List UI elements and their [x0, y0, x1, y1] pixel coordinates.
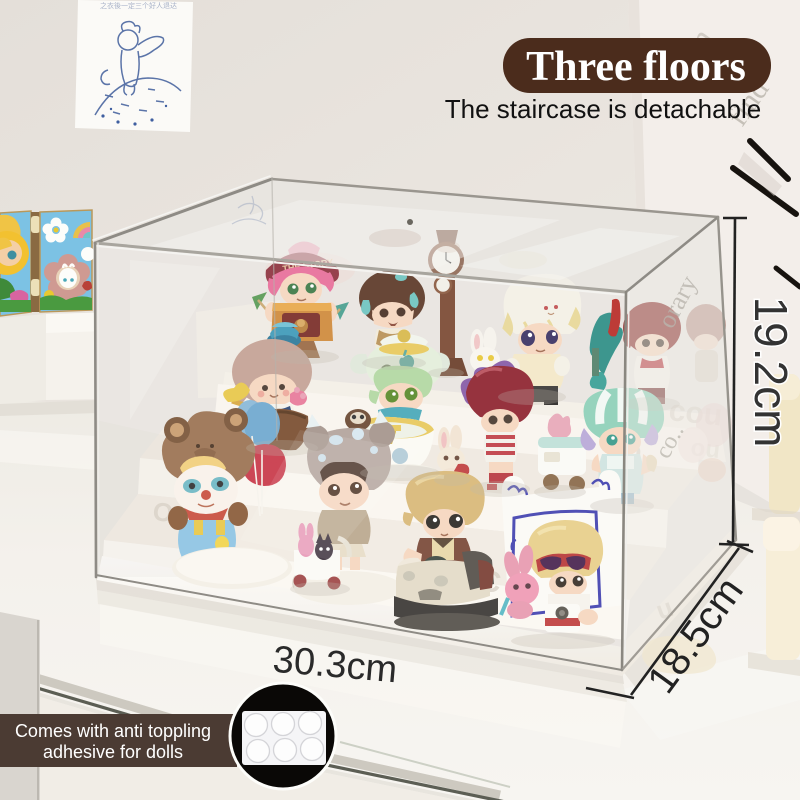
svg-text:之衣後一定三个好人退达: 之衣後一定三个好人退达 — [100, 1, 177, 10]
svg-text:adhesive for dolls: adhesive for dolls — [43, 742, 183, 762]
svg-text:Three floors: Three floors — [526, 44, 746, 90]
svg-text:The staircase is detachable: The staircase is detachable — [445, 94, 762, 124]
svg-text:19.2cm: 19.2cm — [745, 297, 797, 448]
svg-text:Comes with anti toppling: Comes with anti toppling — [15, 721, 211, 741]
